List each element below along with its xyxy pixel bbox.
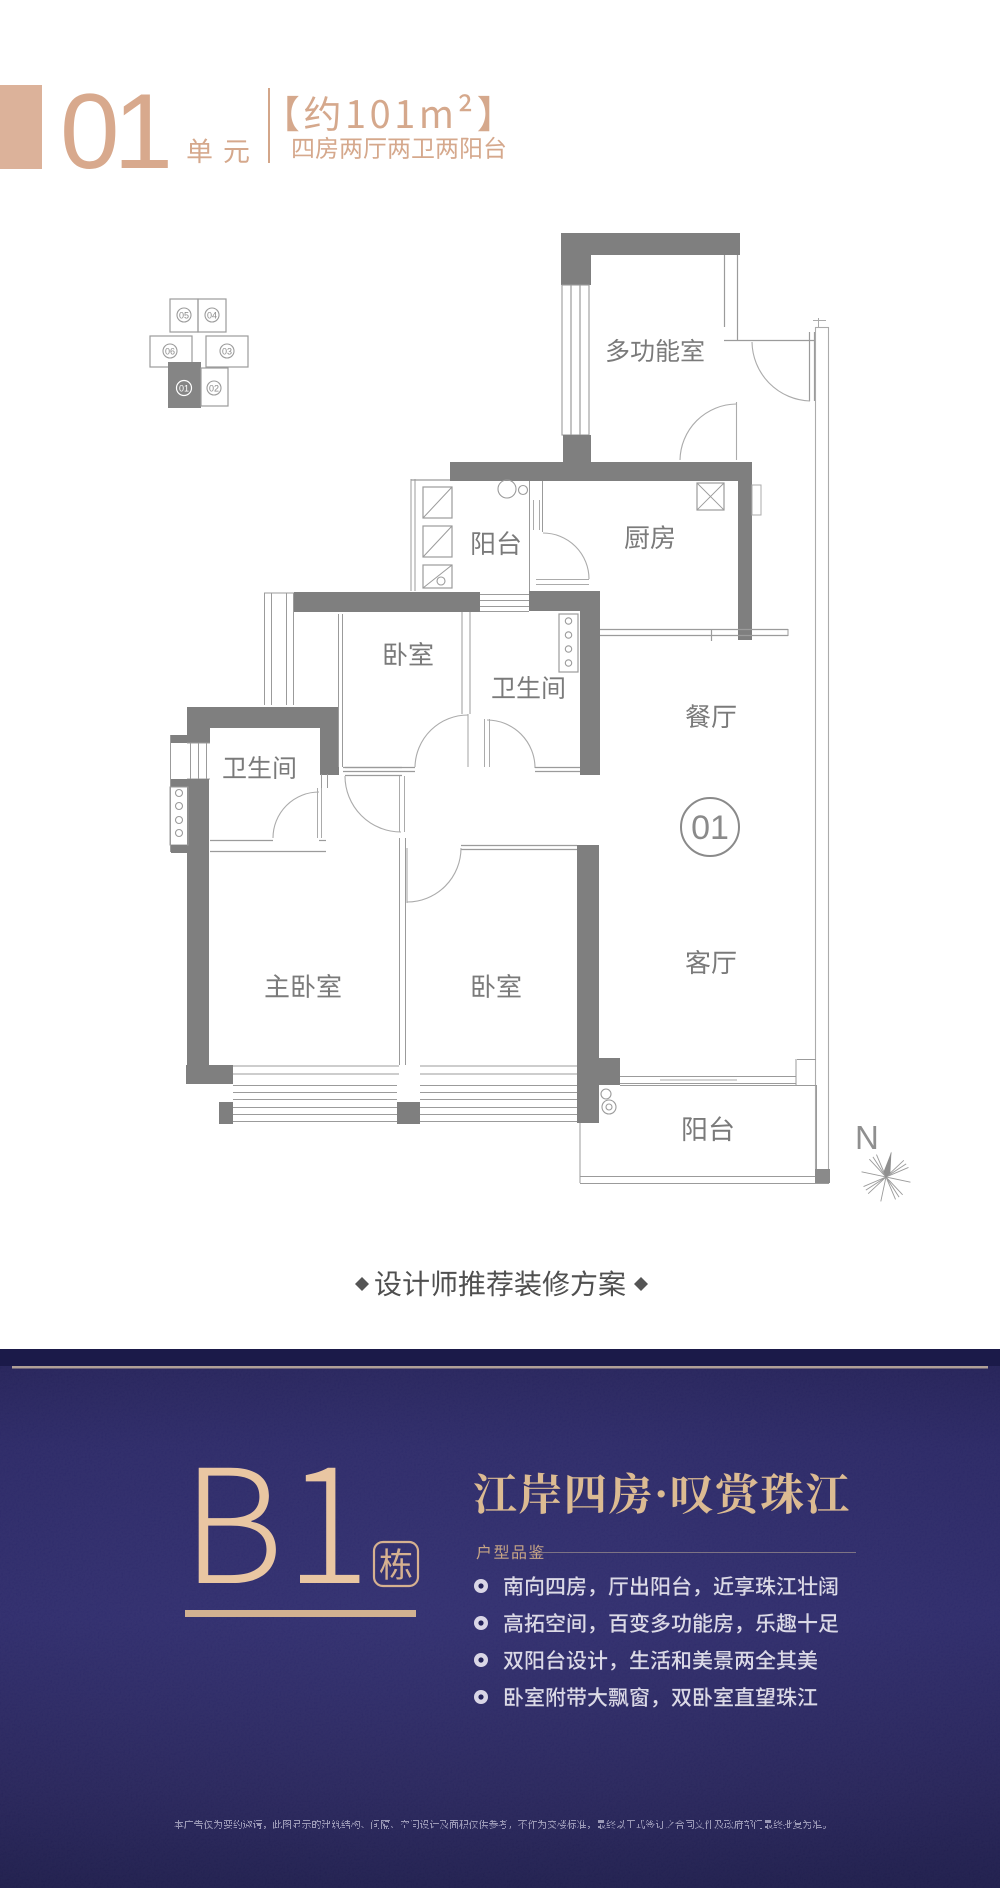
svg-text:01: 01 [60, 71, 170, 191]
svg-text:01: 01 [691, 809, 729, 847]
svg-text:04: 04 [207, 311, 217, 321]
svg-text:01: 01 [179, 384, 189, 394]
svg-text:02: 02 [209, 384, 219, 394]
svg-text:06: 06 [165, 347, 175, 357]
svg-text:N: N [855, 1119, 879, 1156]
svg-text:03: 03 [222, 347, 232, 357]
svg-text:05: 05 [179, 311, 189, 321]
